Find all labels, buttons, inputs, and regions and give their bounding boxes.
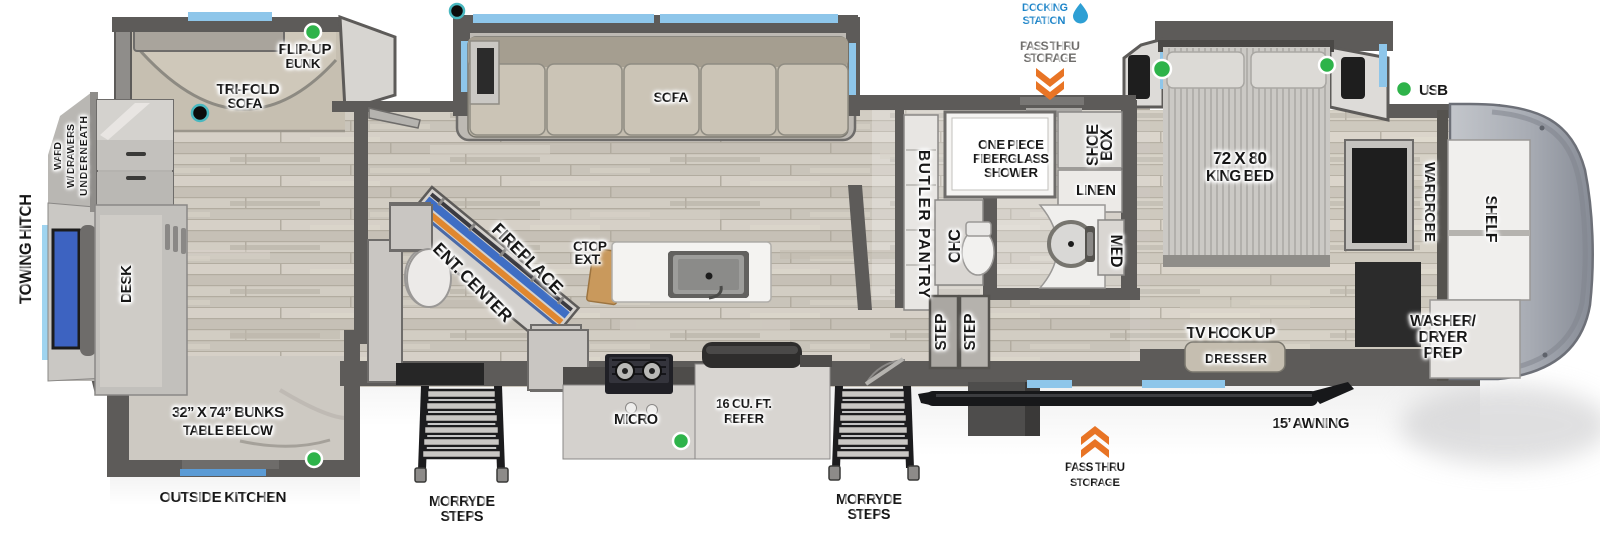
svg-text:STEP: STEP	[933, 314, 950, 351]
svg-text:15’ AWNING: 15’ AWNING	[1273, 416, 1350, 432]
svg-text:LINEN: LINEN	[1076, 183, 1116, 199]
svg-text:16 CU. FT.: 16 CU. FT.	[716, 396, 772, 411]
svg-text:OUTSIDE KITCHEN: OUTSIDE KITCHEN	[160, 489, 287, 506]
svg-text:MORRYDE: MORRYDE	[836, 492, 902, 508]
svg-text:W/ DRAWERS: W/ DRAWERS	[65, 124, 77, 188]
svg-text:MICRO: MICRO	[614, 412, 658, 428]
svg-text:SHELF: SHELF	[1482, 196, 1499, 243]
svg-text:STEPS: STEPS	[848, 507, 891, 523]
svg-text:STORAGE: STORAGE	[1070, 477, 1121, 489]
svg-text:WASHER/: WASHER/	[1410, 313, 1477, 330]
svg-text:USB: USB	[1419, 82, 1448, 99]
svg-text:TOWING HITCH: TOWING HITCH	[17, 194, 35, 304]
svg-text:DOCKING: DOCKING	[1022, 2, 1068, 14]
svg-text:SOFA: SOFA	[654, 89, 689, 105]
svg-text:SHOWER: SHOWER	[984, 165, 1038, 180]
svg-text:FIBERGLASS: FIBERGLASS	[973, 151, 1049, 166]
svg-text:DRYER: DRYER	[1419, 329, 1468, 346]
svg-text:UNDERNEATH: UNDERNEATH	[78, 116, 90, 196]
svg-text:ONE PIECE: ONE PIECE	[978, 137, 1044, 152]
svg-text:KING BED: KING BED	[1206, 168, 1274, 185]
svg-text:BUTLER PANTRY: BUTLER PANTRY	[915, 150, 932, 299]
svg-text:WARD: WARD	[52, 142, 64, 170]
svg-text:BOX: BOX	[1098, 129, 1116, 161]
svg-text:PASS THRU: PASS THRU	[1065, 461, 1125, 474]
svg-text:PREP: PREP	[1424, 345, 1463, 362]
svg-text:MED: MED	[1107, 235, 1125, 268]
svg-text:STATION: STATION	[1023, 15, 1066, 27]
svg-text:STEPS: STEPS	[441, 509, 484, 525]
svg-text:OHC: OHC	[945, 229, 964, 263]
svg-text:REFER: REFER	[724, 411, 765, 426]
svg-text:MORRYDE: MORRYDE	[429, 494, 495, 510]
svg-text:TABLE BELOW: TABLE BELOW	[183, 423, 273, 438]
svg-text:BUNK: BUNK	[286, 56, 321, 71]
svg-text:WARDROBE: WARDROBE	[1421, 162, 1437, 242]
svg-text:EXT.: EXT.	[575, 251, 602, 267]
svg-text:72 X 80: 72 X 80	[1213, 148, 1267, 168]
svg-text:STORAGE: STORAGE	[1024, 51, 1077, 65]
svg-text:STEP: STEP	[962, 314, 979, 351]
svg-text:DRESSER: DRESSER	[1205, 352, 1267, 366]
svg-text:TV HOOK UP: TV HOOK UP	[1187, 325, 1276, 342]
svg-text:32” X 74” BUNKS: 32” X 74” BUNKS	[172, 405, 284, 421]
svg-text:SOFA: SOFA	[228, 95, 263, 111]
svg-text:DESK: DESK	[118, 265, 135, 303]
